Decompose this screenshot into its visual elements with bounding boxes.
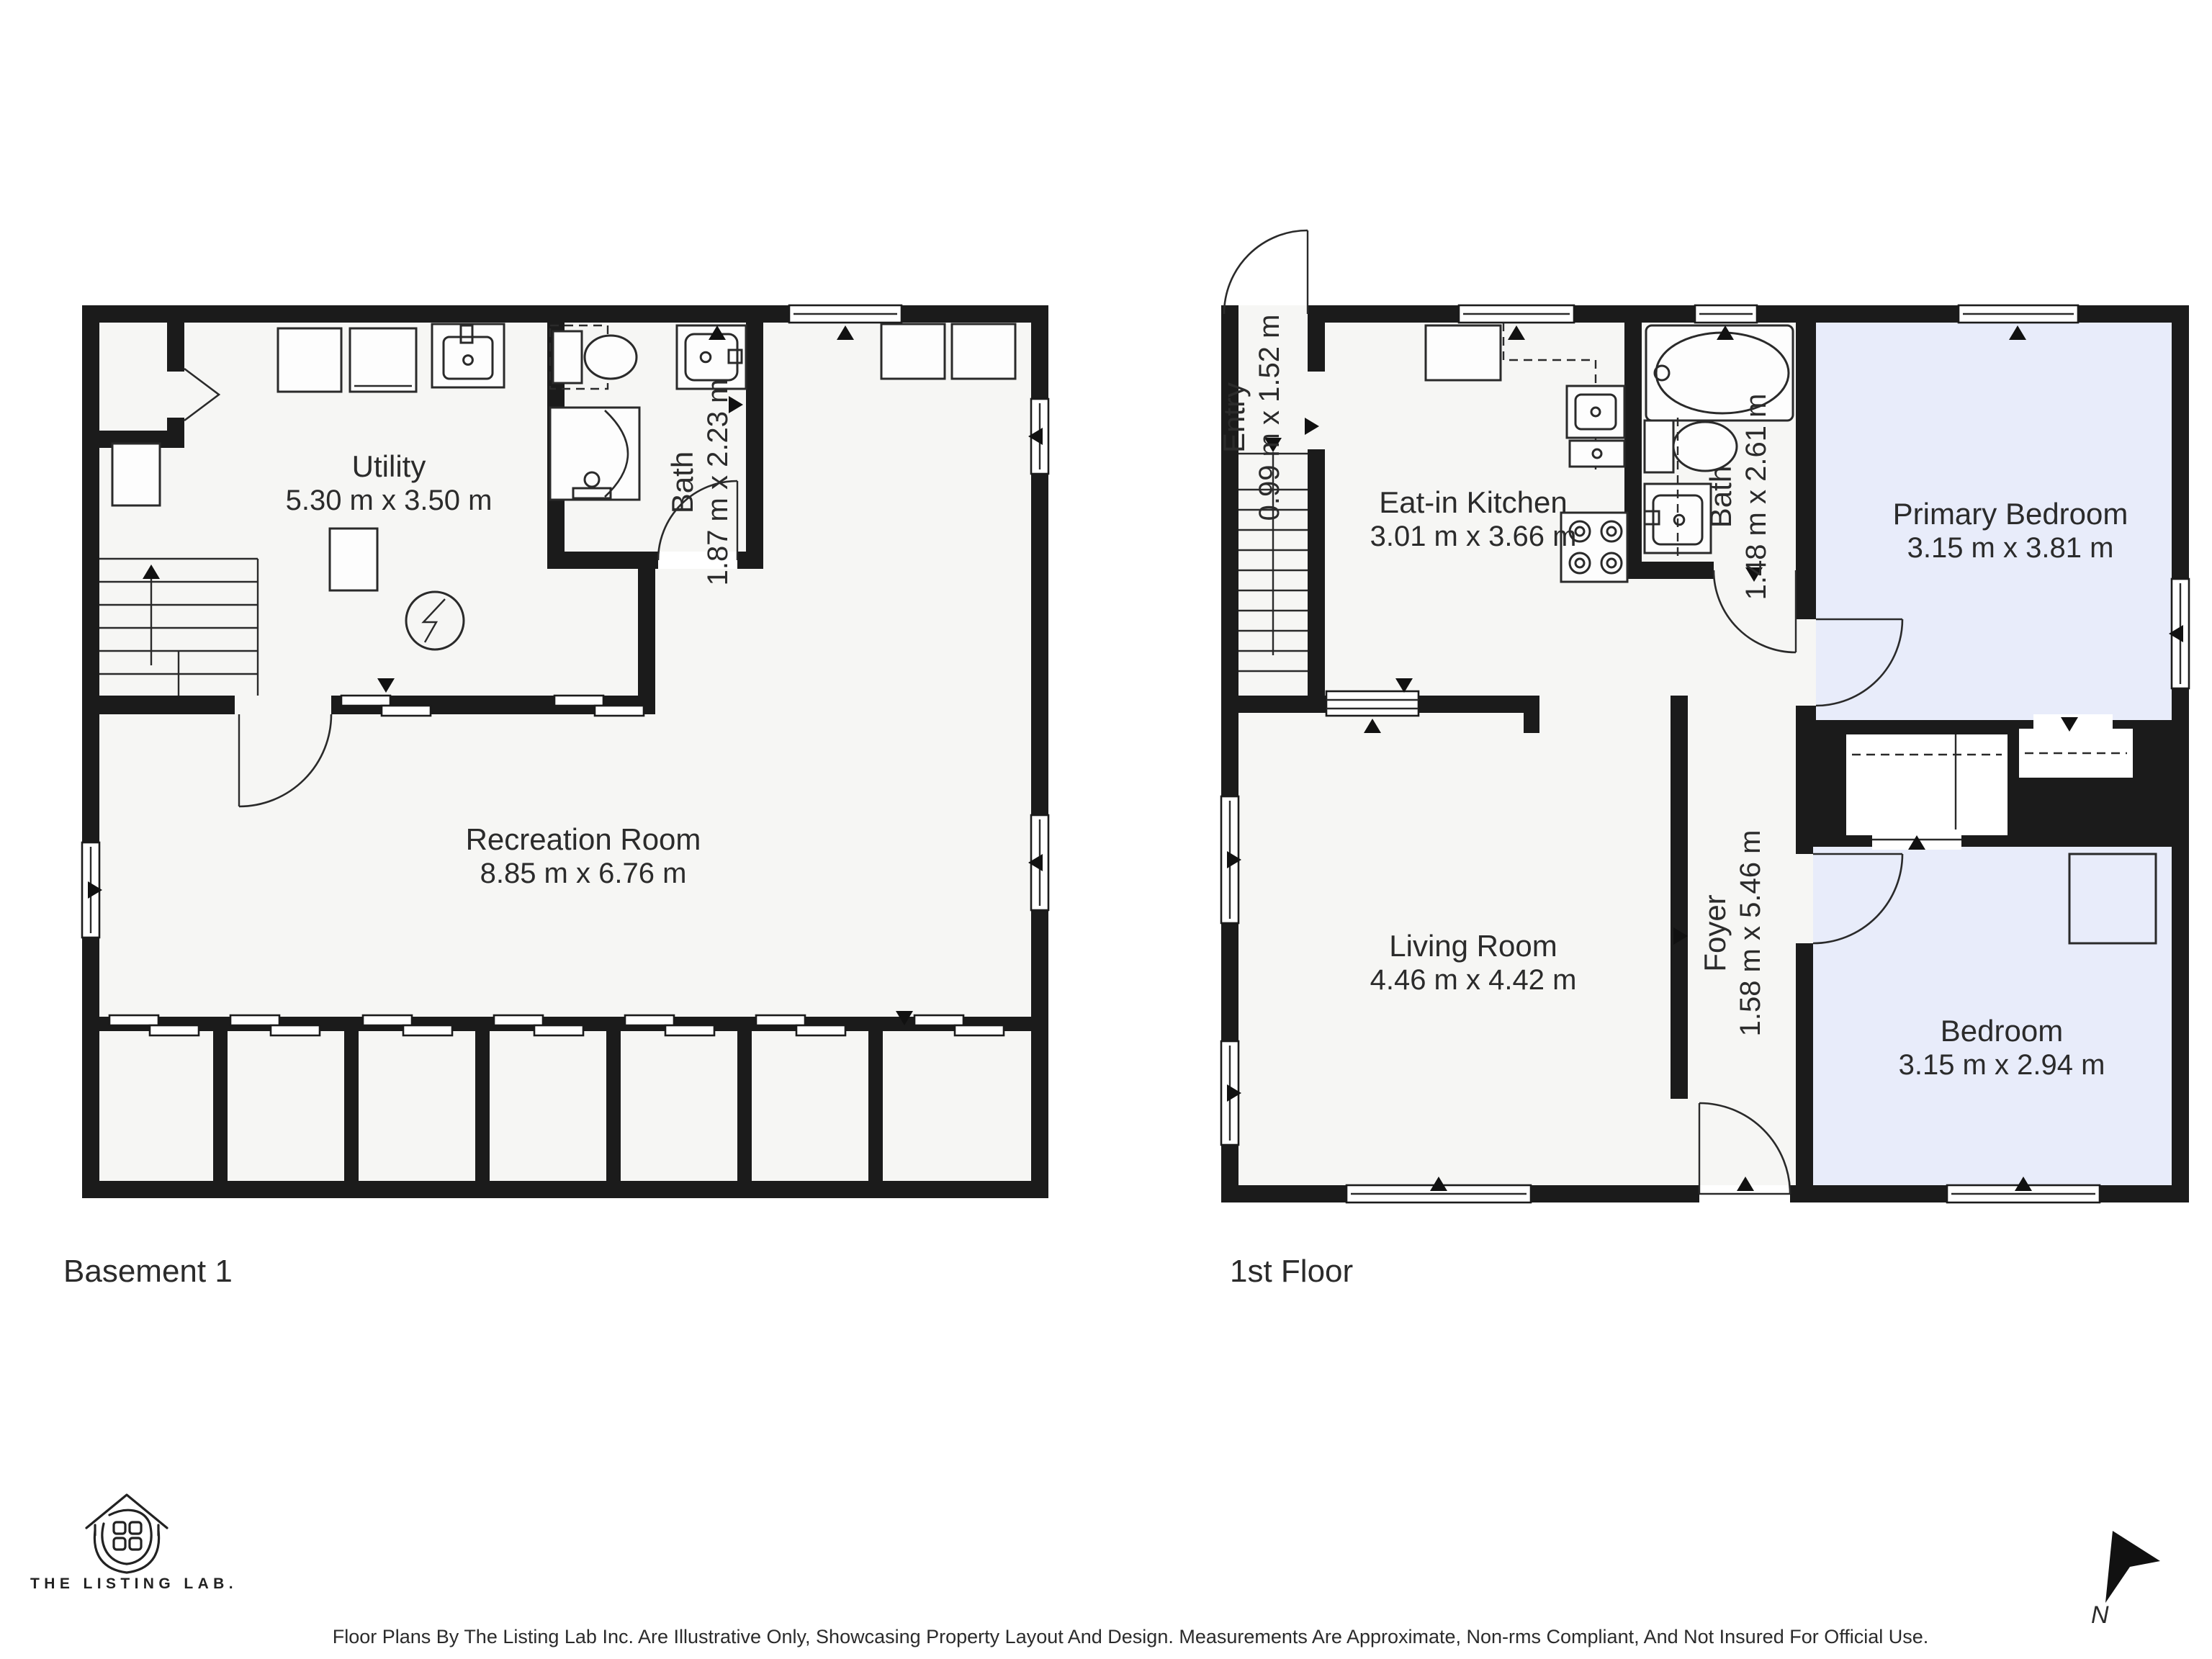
- floorplan-page: Utility 5.30 m x 3.50 m Bath 1.87 m x 2.…: [0, 0, 2212, 1659]
- room-label-living: Living Room: [1389, 929, 1557, 963]
- room-label-primary-bedroom: Primary Bedroom: [1893, 497, 2128, 531]
- room-label-utility: Utility: [352, 449, 426, 483]
- freezer-icon: [952, 324, 1015, 379]
- room-dims-primary-bedroom: 3.15 m x 3.81 m: [1907, 532, 2114, 564]
- logo-text: THE LISTING LAB.: [30, 1575, 238, 1592]
- room-label-bath: Bath: [1704, 466, 1737, 528]
- room-dims-recreation: 8.85 m x 6.76 m: [480, 858, 687, 889]
- north-arrow-icon: [2105, 1531, 2160, 1603]
- toilet-icon: [1645, 421, 1737, 472]
- disclaimer-text: Floor Plans By The Listing Lab Inc. Are …: [333, 1626, 1929, 1647]
- washer-icon: [278, 328, 341, 392]
- shower-icon: [550, 408, 639, 500]
- room-dims-kitchen: 3.01 m x 3.66 m: [1370, 521, 1577, 552]
- listing-lab-house-icon: [86, 1495, 167, 1573]
- room-dims-bedroom: 3.15 m x 2.94 m: [1899, 1049, 2105, 1081]
- water-heater-icon: [112, 444, 160, 505]
- basement-title: Basement 1: [63, 1254, 233, 1289]
- room-label-basement-bath: Bath: [665, 451, 699, 513]
- room-dims-living: 4.46 m x 4.42 m: [1370, 964, 1577, 996]
- room-label-foyer: Foyer: [1698, 894, 1732, 971]
- room-dims-bath: 1.48 m x 2.61 m: [1740, 394, 1772, 601]
- room-label-kitchen: Eat-in Kitchen: [1379, 485, 1567, 519]
- north-label: N: [2091, 1601, 2109, 1629]
- room-dims-entry: 0.99 m x 1.52 m: [1254, 315, 1285, 521]
- basement-plan: Utility 5.30 m x 3.50 m Bath 1.87 m x 2.…: [82, 305, 1048, 1198]
- floorplan-canvas: Utility 5.30 m x 3.50 m Bath 1.87 m x 2.…: [0, 0, 2212, 1659]
- room-dims-utility: 5.30 m x 3.50 m: [286, 485, 493, 516]
- laundry-sink-icon: [432, 324, 504, 387]
- room-label-bedroom: Bedroom: [1941, 1014, 2063, 1048]
- kitchen-sink2-icon: [1570, 441, 1624, 467]
- room-dims-foyer: 1.58 m x 5.46 m: [1735, 830, 1766, 1037]
- listing-lab-logo: THE LISTING LAB.: [30, 1495, 238, 1592]
- dryer-icon: [350, 328, 416, 392]
- kitchen-sink-icon: [1567, 386, 1624, 438]
- first-floor-title: 1st Floor: [1230, 1254, 1353, 1289]
- room-label-recreation: Recreation Room: [466, 822, 701, 856]
- fridge-icon: [1426, 325, 1501, 380]
- room-label-entry: Entry: [1217, 382, 1251, 453]
- room-dims-basement-bath: 1.87 m x 2.23 m: [702, 379, 734, 586]
- first-floor-plan: Entry 0.99 m x 1.52 m Eat-in Kitchen 3.0…: [1217, 230, 2189, 1202]
- furnace-icon: [330, 529, 377, 590]
- north-arrow: N: [2091, 1531, 2160, 1629]
- freezer-icon: [881, 324, 945, 379]
